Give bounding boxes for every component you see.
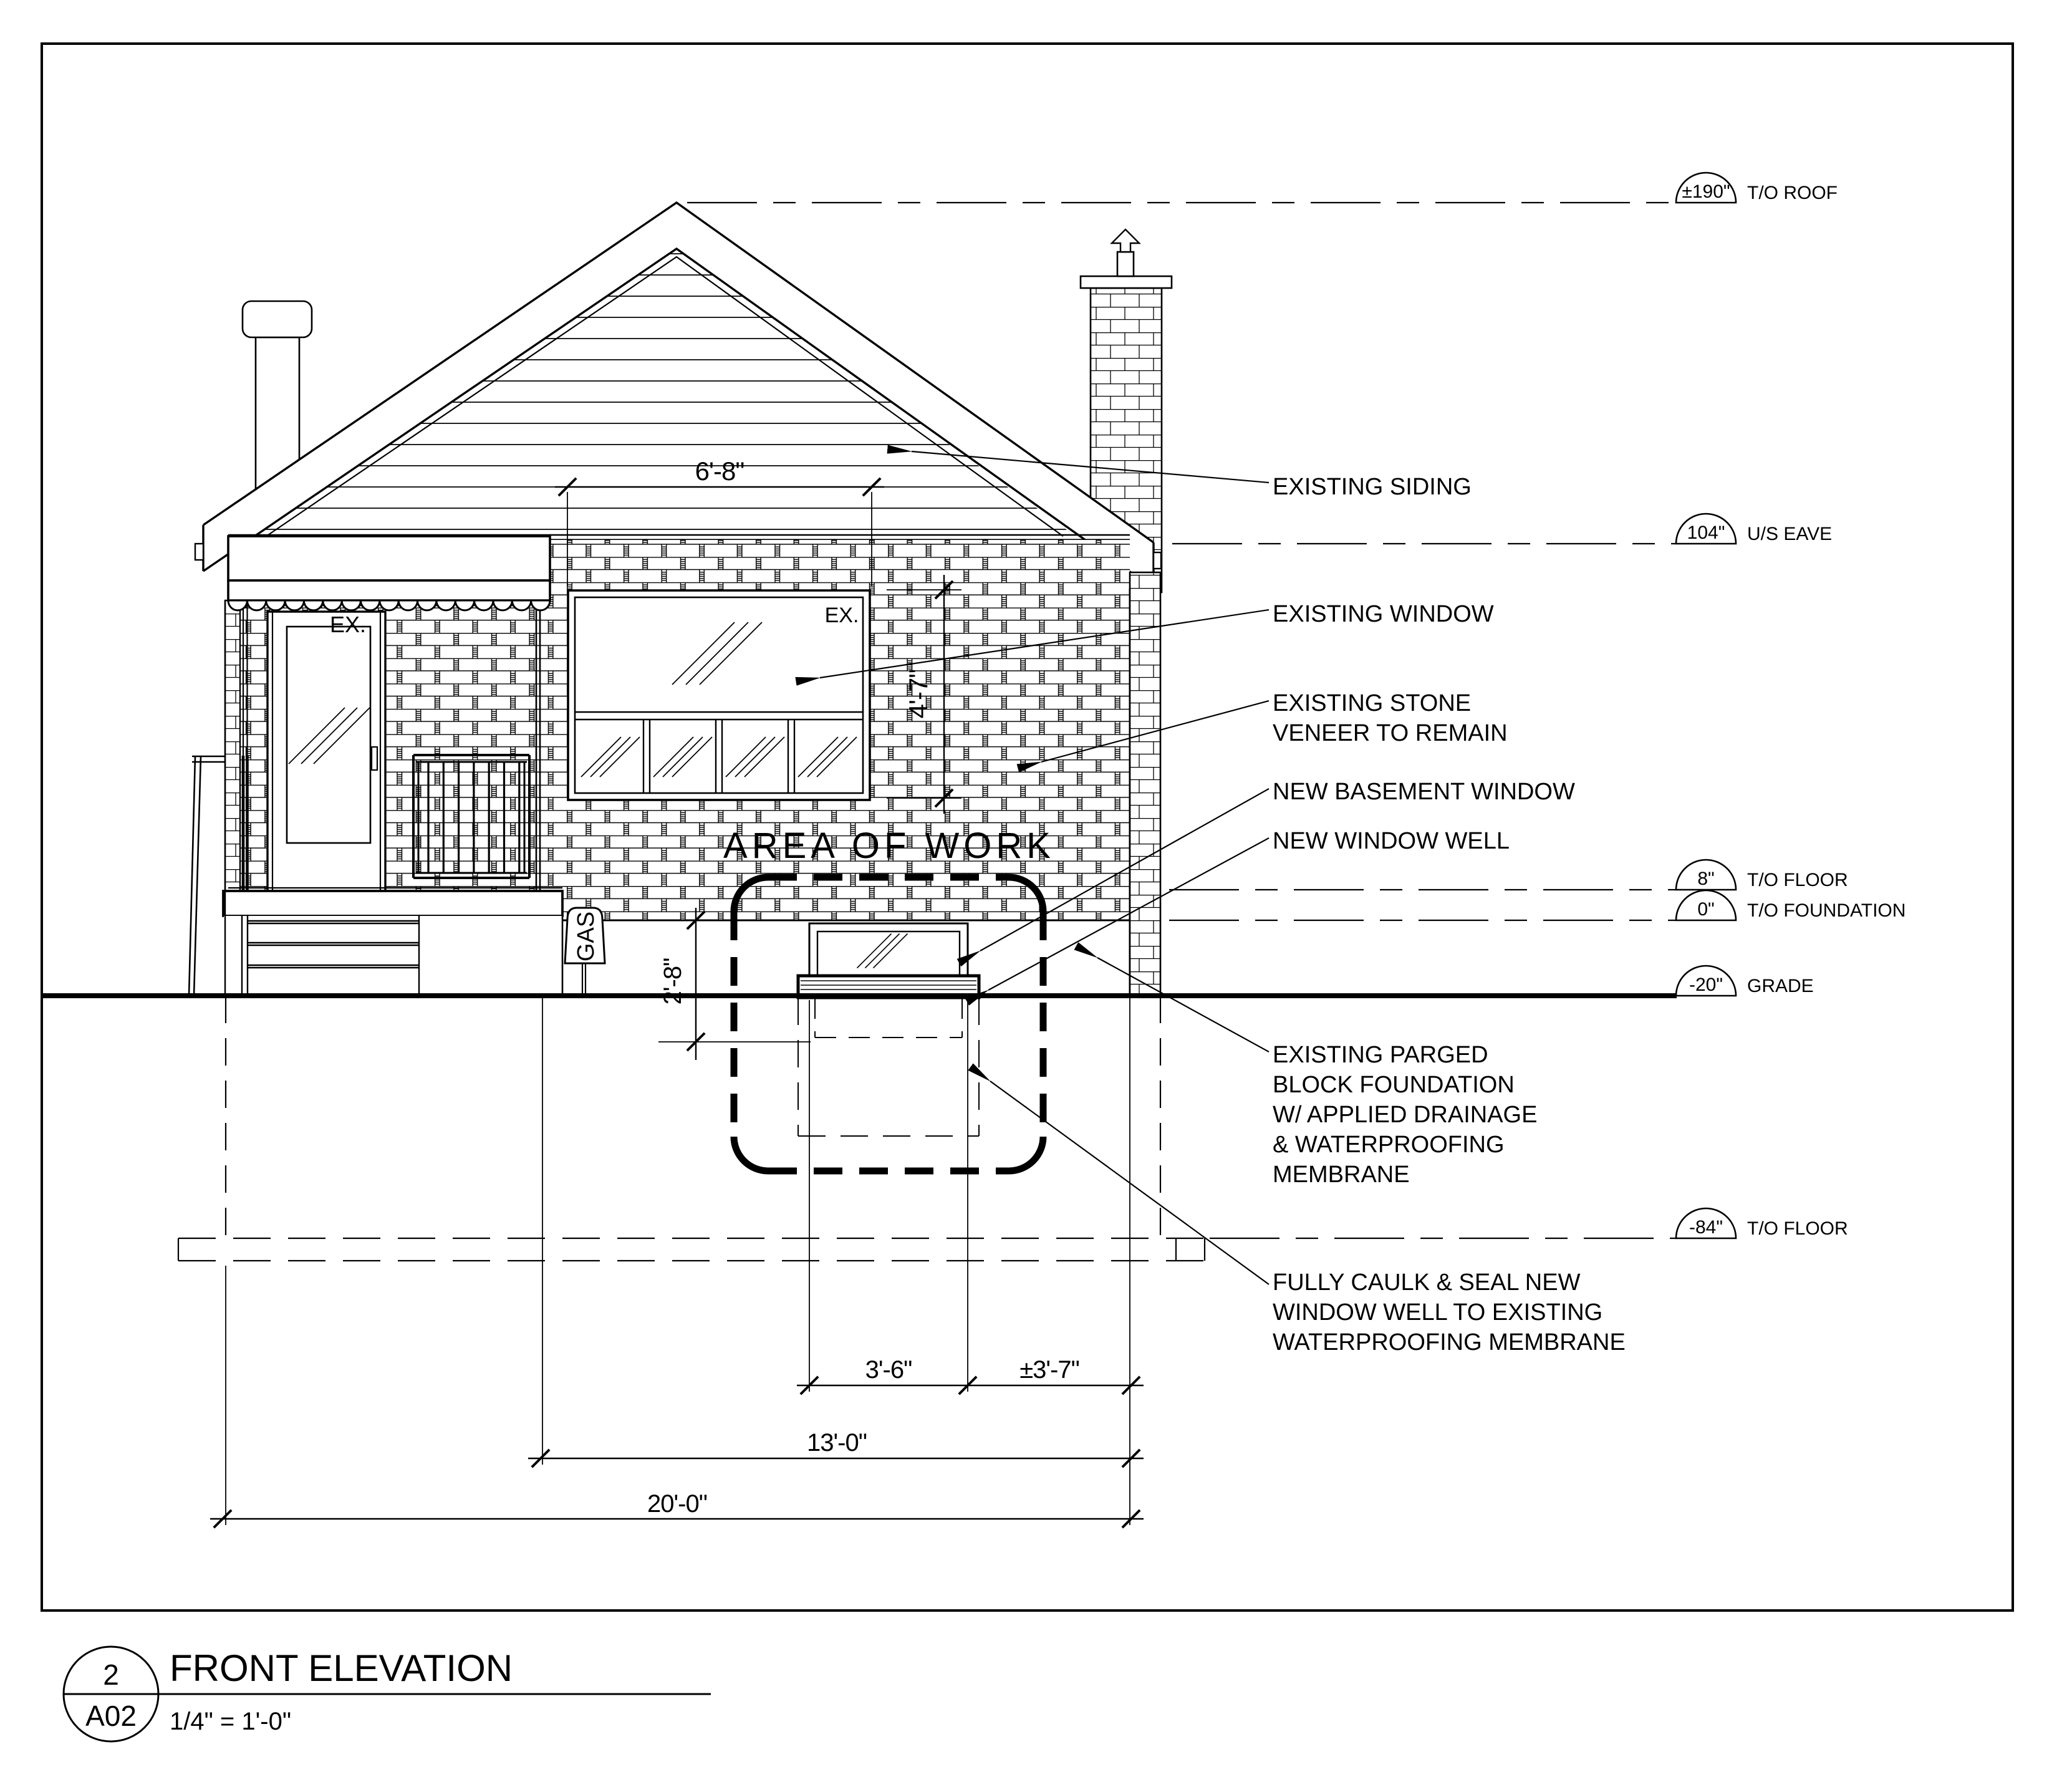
svg-text:-84": -84" — [1689, 1217, 1723, 1238]
svg-text:±190": ±190" — [1682, 181, 1730, 202]
svg-text:3'-6": 3'-6" — [865, 1356, 912, 1384]
svg-text:0": 0" — [1697, 899, 1714, 920]
svg-text:T/O FLOOR: T/O FLOOR — [1747, 1218, 1848, 1239]
svg-text:EXISTING SIDING: EXISTING SIDING — [1273, 474, 1472, 500]
svg-text:T/O FOUNDATION: T/O FOUNDATION — [1747, 900, 1906, 921]
svg-text:8": 8" — [1697, 869, 1714, 889]
svg-text:EX.: EX. — [330, 612, 366, 637]
svg-text:GRADE: GRADE — [1747, 976, 1814, 996]
svg-text:-20": -20" — [1689, 975, 1723, 995]
svg-text:6'-8": 6'-8" — [695, 456, 744, 486]
svg-text:BLOCK FOUNDATION: BLOCK FOUNDATION — [1273, 1072, 1515, 1098]
svg-text:104": 104" — [1687, 522, 1725, 543]
svg-text:20'-0": 20'-0" — [647, 1490, 707, 1518]
svg-text:±3'-7": ±3'-7" — [1019, 1356, 1079, 1384]
svg-text:W/ APPLIED DRAINAGE: W/ APPLIED DRAINAGE — [1273, 1102, 1537, 1128]
svg-text:FULLY CAULK & SEAL NEW: FULLY CAULK & SEAL NEW — [1273, 1269, 1581, 1296]
svg-text:FRONT ELEVATION: FRONT ELEVATION — [170, 1647, 513, 1689]
svg-text:1/4" = 1'-0": 1/4" = 1'-0" — [170, 1708, 291, 1735]
svg-text:EXISTING WINDOW: EXISTING WINDOW — [1273, 601, 1494, 627]
svg-text:U/S EAVE: U/S EAVE — [1747, 524, 1832, 544]
svg-text:WATERPROOFING MEMBRANE: WATERPROOFING MEMBRANE — [1273, 1329, 1626, 1355]
svg-text:NEW BASEMENT WINDOW: NEW BASEMENT WINDOW — [1273, 779, 1575, 805]
svg-text:EXISTING PARGED: EXISTING PARGED — [1273, 1042, 1488, 1068]
svg-text:VENEER TO REMAIN: VENEER TO REMAIN — [1273, 720, 1508, 746]
svg-text:MEMBRANE: MEMBRANE — [1273, 1162, 1410, 1188]
svg-text:T/O ROOF: T/O ROOF — [1747, 183, 1838, 203]
svg-text:13'-0": 13'-0" — [807, 1429, 867, 1456]
svg-text:2: 2 — [103, 1659, 119, 1691]
svg-text:& WATERPROOFING: & WATERPROOFING — [1273, 1132, 1505, 1158]
svg-text:AREA OF WORK: AREA OF WORK — [723, 826, 1055, 866]
svg-text:NEW WINDOW WELL: NEW WINDOW WELL — [1273, 828, 1510, 854]
svg-text:EXISTING STONE: EXISTING STONE — [1273, 690, 1471, 716]
svg-text:A02: A02 — [85, 1700, 137, 1732]
svg-text:WINDOW WELL TO EXISTING: WINDOW WELL TO EXISTING — [1273, 1299, 1602, 1326]
svg-text:T/O FLOOR: T/O FLOOR — [1747, 870, 1848, 890]
svg-text:4'-7": 4'-7" — [903, 670, 933, 719]
svg-text:GAS: GAS — [573, 912, 599, 961]
svg-text:EX.: EX. — [825, 604, 859, 627]
